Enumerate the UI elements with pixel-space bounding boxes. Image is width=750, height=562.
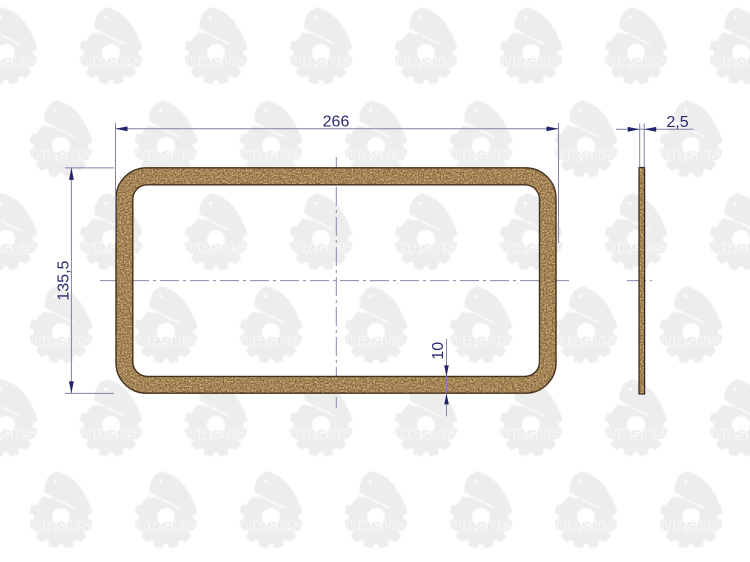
svg-text:2,5: 2,5 [666,114,688,131]
svg-text:135,5: 135,5 [56,260,73,300]
svg-text:266: 266 [323,114,350,131]
svg-text:10: 10 [430,342,447,360]
